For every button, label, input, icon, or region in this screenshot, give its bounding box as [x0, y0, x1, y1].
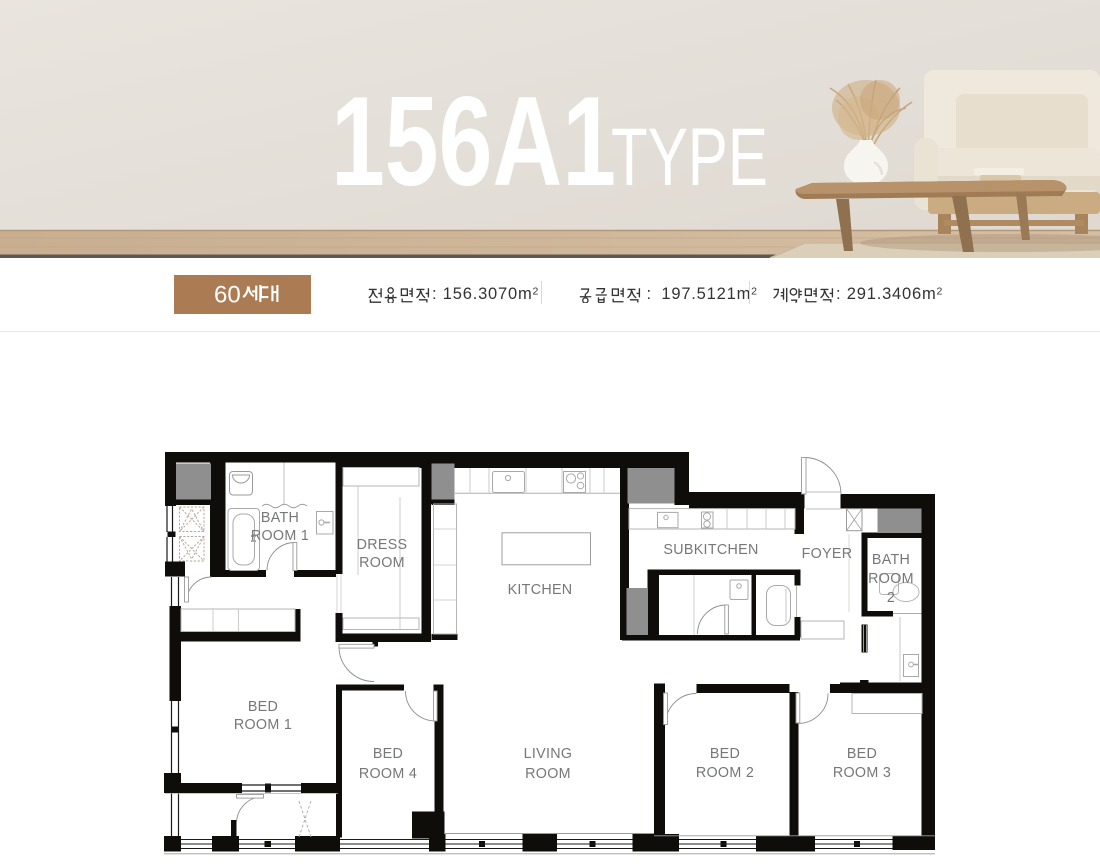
svg-text:BED: BED	[847, 746, 877, 762]
svg-text:ROOM 3: ROOM 3	[833, 765, 891, 781]
svg-text:ROOM: ROOM	[359, 555, 405, 571]
svg-text:BED: BED	[248, 699, 278, 715]
svg-text:ROOM: ROOM	[868, 571, 914, 587]
svg-text:ROOM 1: ROOM 1	[234, 717, 292, 733]
svg-text:ROOM 4: ROOM 4	[359, 766, 417, 782]
svg-text:ROOM: ROOM	[525, 766, 571, 782]
svg-text:BED: BED	[373, 746, 403, 762]
svg-text:FOYER: FOYER	[802, 546, 853, 562]
svg-text:BATH: BATH	[872, 552, 910, 568]
svg-text:KITCHEN: KITCHEN	[508, 582, 573, 598]
svg-text:BED: BED	[710, 746, 740, 762]
svg-text:2: 2	[887, 590, 895, 606]
svg-text:ROOM 2: ROOM 2	[696, 765, 754, 781]
svg-text:LIVING: LIVING	[524, 746, 573, 762]
svg-text:DRESS: DRESS	[357, 537, 408, 553]
svg-text:SUBKITCHEN: SUBKITCHEN	[663, 542, 758, 558]
svg-text:BATH: BATH	[261, 510, 299, 526]
svg-text:ROOM 1: ROOM 1	[251, 528, 309, 544]
